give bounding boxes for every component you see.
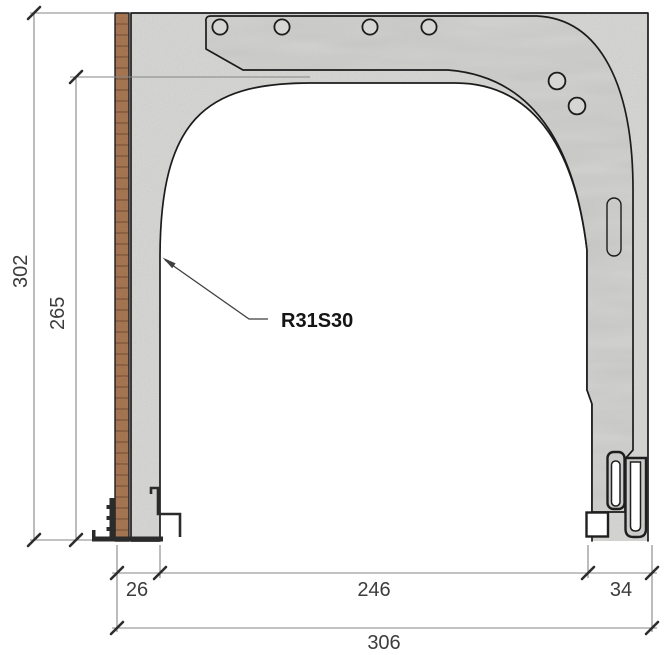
section-drawing: 302 265 26 246 34 306 R31S30	[0, 0, 669, 655]
dim-bottom-row: 26 246 34	[111, 545, 658, 632]
plate-hole-2	[274, 19, 289, 34]
cad-drawing-canvas: 302 265 26 246 34 306 R31S30	[0, 0, 669, 655]
plate-hole-4	[421, 19, 436, 34]
plate-hole-3	[362, 19, 377, 34]
dim-label-guide-rail-width: 34	[610, 579, 632, 601]
rail-center-slot	[612, 461, 621, 506]
callout-label: R31S30	[281, 310, 353, 332]
dim-label-opening-height: 265	[47, 297, 69, 330]
plate-hole-1	[212, 19, 227, 34]
dim-label-opening-width: 246	[357, 579, 390, 601]
dim-label-wall-thickness: 26	[126, 579, 148, 601]
callout: R31S30	[163, 258, 354, 333]
dim-label-overall-width: 306	[367, 632, 400, 654]
brick-facing-strip	[115, 13, 129, 541]
brick-courses	[115, 13, 129, 541]
dim-overall-height: 302	[10, 7, 115, 546]
fixing-hole-1	[549, 73, 566, 90]
callout-leader	[165, 260, 268, 319]
rail-right-slot	[631, 462, 641, 531]
dim-label-overall-height: 302	[10, 255, 32, 288]
fixing-hole-2	[569, 98, 586, 115]
rail-hollow-chamber	[587, 513, 609, 537]
dim-overall-width: 306	[111, 622, 658, 654]
